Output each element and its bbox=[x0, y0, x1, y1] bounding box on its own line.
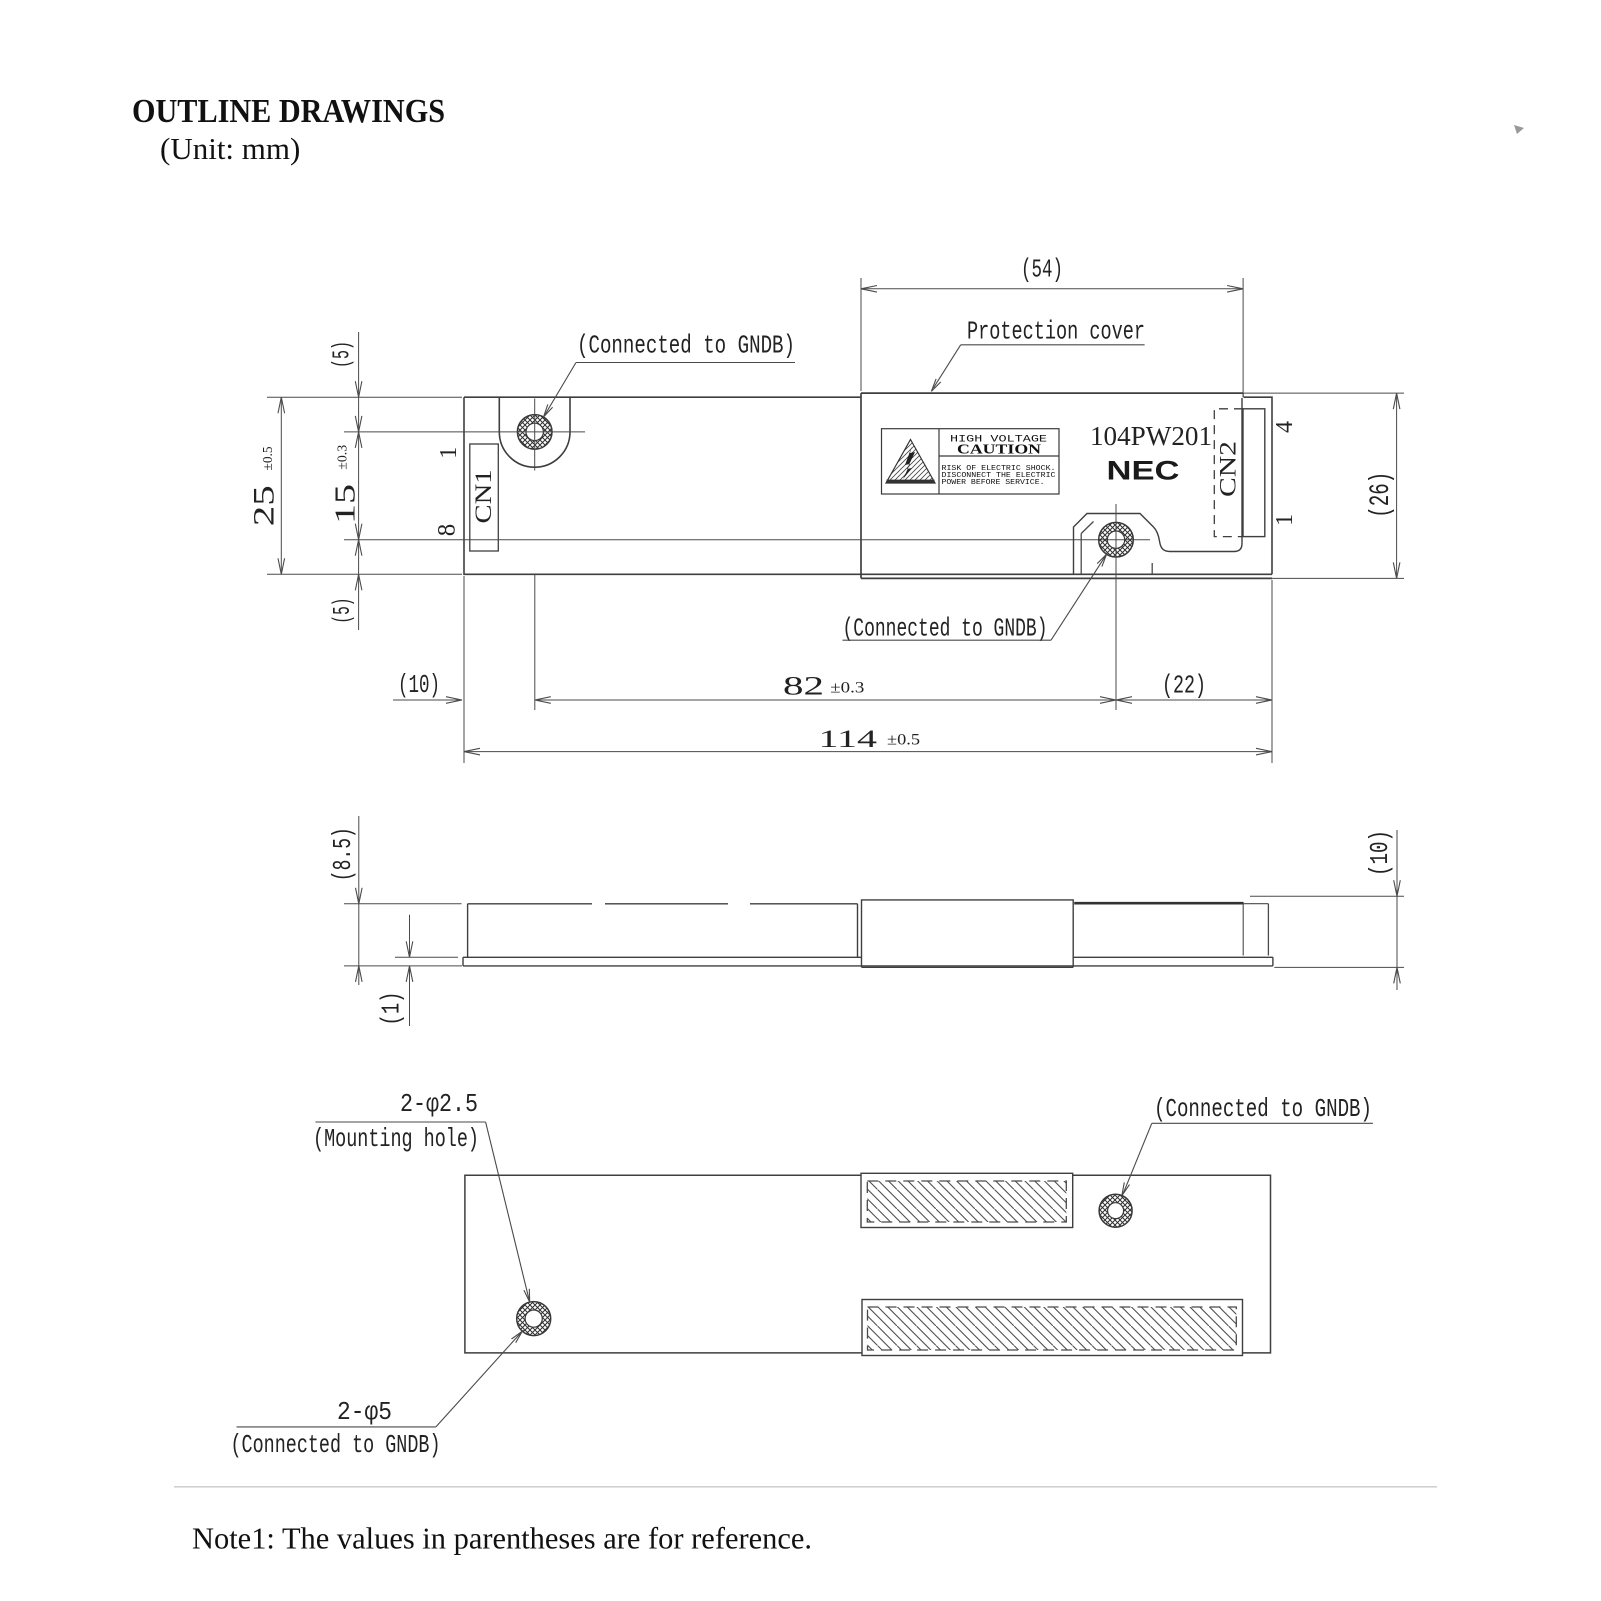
svg-text:(Connected to GNDB): (Connected to GNDB) bbox=[1154, 1094, 1372, 1124]
svg-text:8: 8 bbox=[434, 524, 461, 537]
svg-text:2-φ2.5: 2-φ2.5 bbox=[400, 1089, 478, 1119]
svg-text:2-φ5: 2-φ5 bbox=[337, 1397, 392, 1427]
svg-text:CAUTION: CAUTION bbox=[957, 443, 1041, 458]
svg-text:(54): (54) bbox=[1021, 255, 1063, 285]
svg-text:(Connected to GNDB): (Connected to GNDB) bbox=[231, 1430, 441, 1460]
svg-text:±0.3: ±0.3 bbox=[830, 680, 864, 697]
svg-text:OUTLINE DRAWINGS: OUTLINE DRAWINGS bbox=[132, 93, 445, 130]
svg-text:NEC: NEC bbox=[1107, 456, 1180, 486]
svg-text:114: 114 bbox=[819, 726, 878, 753]
svg-text:POWER BEFORE SERVICE.: POWER BEFORE SERVICE. bbox=[942, 479, 1045, 487]
svg-text:(8.5): (8.5) bbox=[328, 827, 358, 881]
svg-text:Protection cover: Protection cover bbox=[967, 317, 1145, 347]
svg-text:(26): (26) bbox=[1366, 472, 1397, 518]
svg-text:CN2: CN2 bbox=[1216, 441, 1241, 497]
svg-text:CN1: CN1 bbox=[471, 470, 496, 524]
svg-text:(Connected to GNDB): (Connected to GNDB) bbox=[843, 614, 1048, 644]
svg-text:(22): (22) bbox=[1162, 671, 1206, 701]
svg-text:(Connected to GNDB): (Connected to GNDB) bbox=[577, 331, 795, 361]
svg-text:82: 82 bbox=[783, 672, 824, 701]
svg-text:(1): (1) bbox=[377, 992, 407, 1026]
svg-text:±0.5: ±0.5 bbox=[261, 447, 276, 471]
svg-text:1: 1 bbox=[1272, 514, 1298, 526]
svg-text:15: 15 bbox=[331, 484, 362, 524]
svg-text:(Mounting hole): (Mounting hole) bbox=[313, 1124, 479, 1154]
svg-text:Note1: The values in parenthes: Note1: The values in parentheses are for… bbox=[192, 1521, 812, 1556]
svg-text:4: 4 bbox=[1272, 421, 1298, 433]
svg-text:±0.5: ±0.5 bbox=[887, 732, 920, 749]
svg-text:(5): (5) bbox=[330, 598, 357, 624]
svg-text:25: 25 bbox=[248, 485, 281, 526]
svg-text:(5): (5) bbox=[330, 341, 357, 368]
svg-text:(10): (10) bbox=[1365, 830, 1395, 876]
svg-text:±0.3: ±0.3 bbox=[336, 445, 351, 470]
svg-text:1: 1 bbox=[436, 447, 462, 459]
svg-text:104PW201: 104PW201 bbox=[1090, 421, 1212, 451]
svg-text:(Unit: mm): (Unit: mm) bbox=[160, 131, 300, 166]
svg-text:(10): (10) bbox=[398, 670, 440, 700]
